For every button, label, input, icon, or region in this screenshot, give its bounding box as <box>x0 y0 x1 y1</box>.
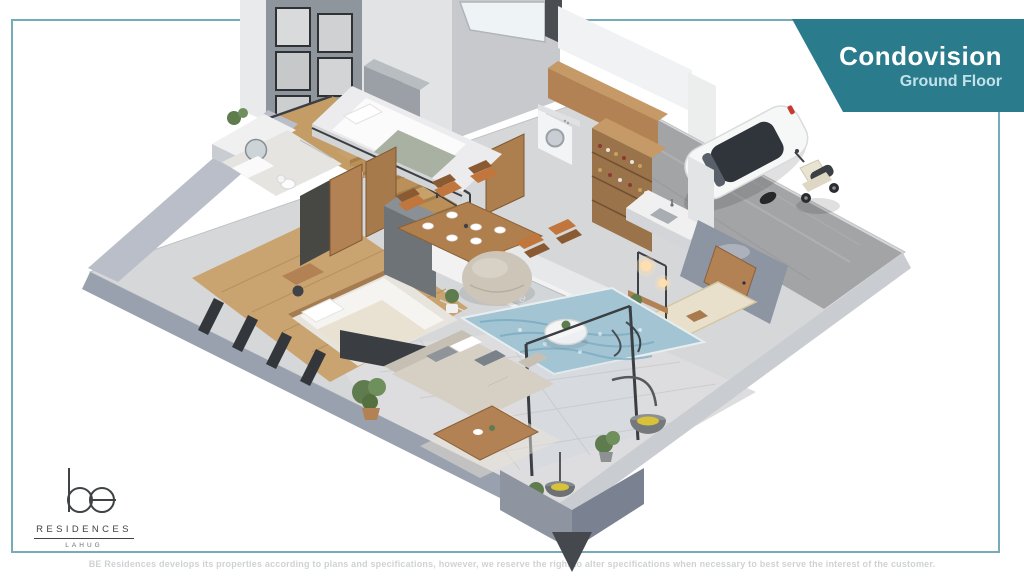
slide: BE Residences develops its properties ac… <box>0 0 1024 576</box>
slide-title: Condovision <box>792 43 1002 70</box>
footer-disclaimer: BE Residences develops its properties ac… <box>0 559 1024 569</box>
logo-lahug-text: LAHUG <box>34 542 134 549</box>
brand-logo: RESIDENCES LAHUG <box>34 466 134 549</box>
be-monogram-icon <box>36 466 132 524</box>
logo-residences-text: RESIDENCES <box>34 524 134 539</box>
